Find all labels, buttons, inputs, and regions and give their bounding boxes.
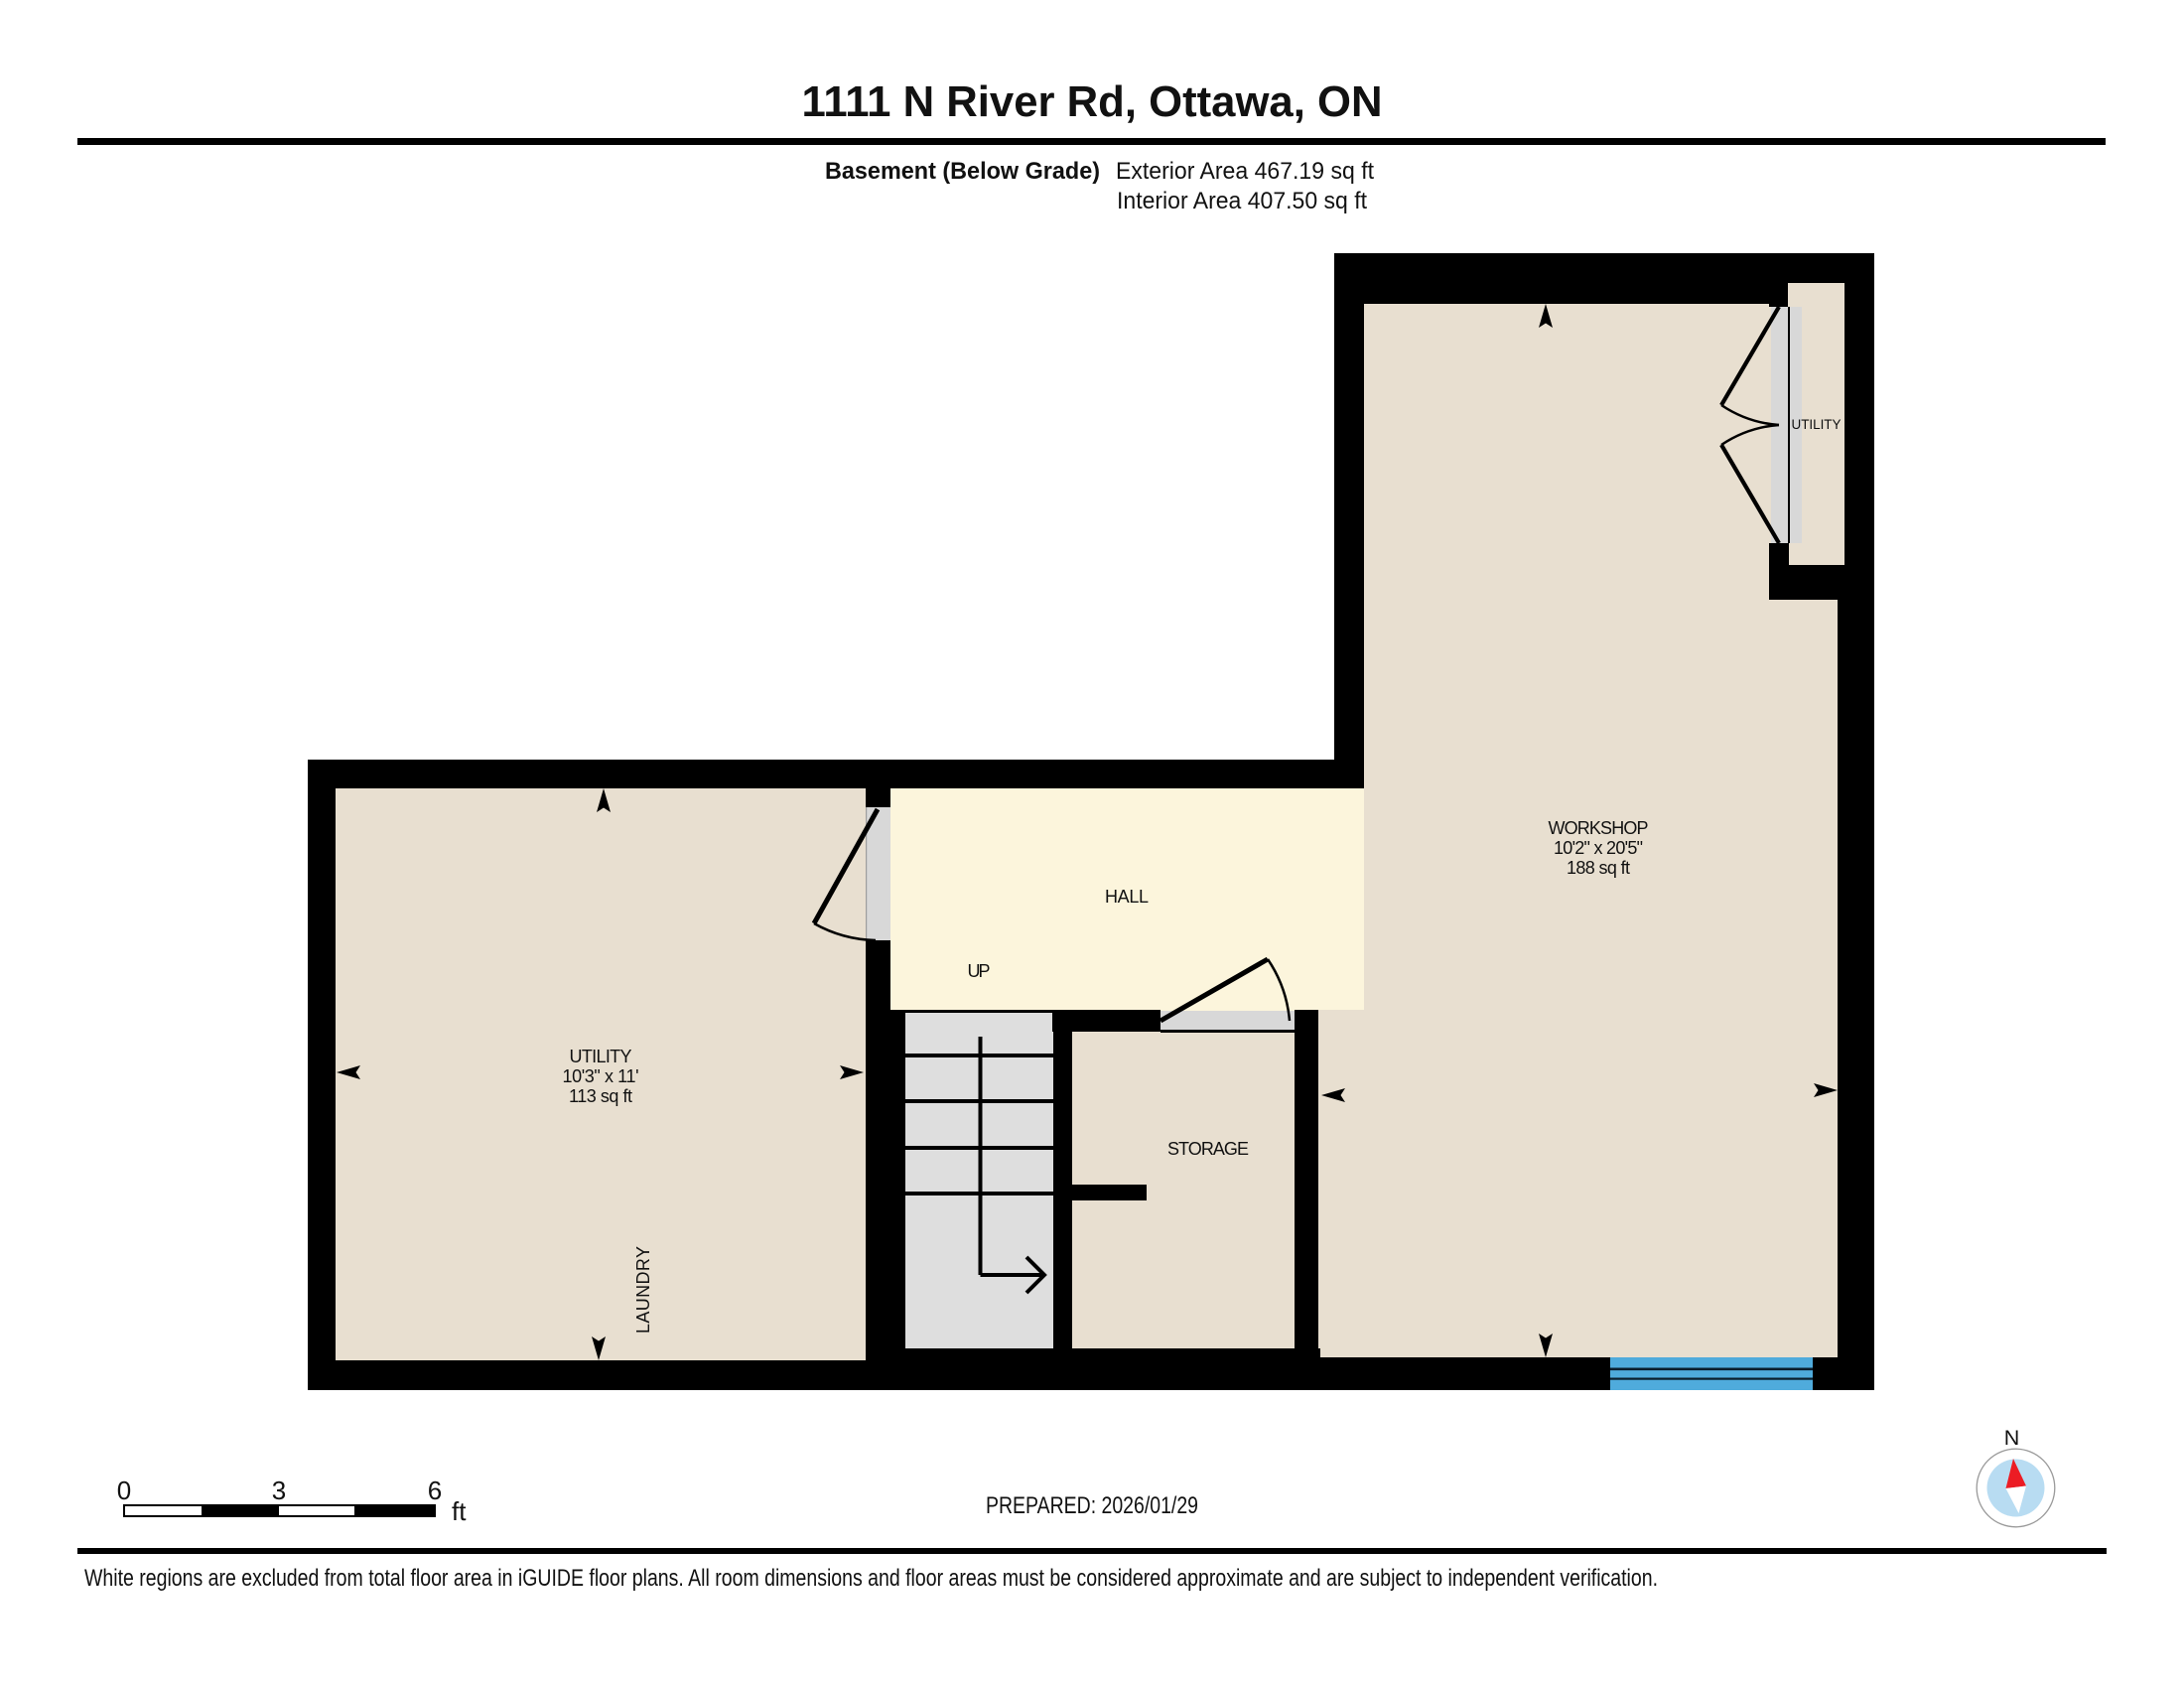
svg-text:188 sq ft: 188 sq ft	[1567, 858, 1630, 878]
svg-text:UP: UP	[968, 961, 991, 981]
svg-text:ft: ft	[452, 1496, 467, 1526]
svg-text:0: 0	[117, 1476, 131, 1505]
svg-text:Basement (Below Grade): Basement (Below Grade)	[825, 158, 1100, 185]
svg-text:113 sq ft: 113 sq ft	[569, 1086, 632, 1106]
svg-text:UTILITY: UTILITY	[1792, 417, 1842, 432]
svg-text:HALL: HALL	[1105, 887, 1149, 907]
svg-text:10'2" x 20'5": 10'2" x 20'5"	[1554, 838, 1643, 858]
svg-text:White regions are excluded fro: White regions are excluded from total fl…	[84, 1565, 1658, 1592]
svg-text:WORKSHOP: WORKSHOP	[1549, 818, 1649, 838]
svg-text:N: N	[2004, 1426, 2020, 1450]
svg-text:3: 3	[272, 1476, 286, 1505]
svg-text:10'3" x 11': 10'3" x 11'	[563, 1066, 639, 1086]
svg-text:PREPARED: 2026/01/29: PREPARED: 2026/01/29	[986, 1492, 1198, 1519]
svg-text:6: 6	[428, 1476, 442, 1505]
svg-text:LAUNDRY: LAUNDRY	[633, 1246, 653, 1334]
svg-text:UTILITY: UTILITY	[570, 1047, 632, 1066]
svg-text:Interior Area 407.50 sq ft: Interior Area 407.50 sq ft	[1117, 188, 1367, 214]
svg-text:Exterior Area 467.19 sq ft: Exterior Area 467.19 sq ft	[1116, 158, 1374, 185]
svg-text:1111 N River Rd, Ottawa, ON: 1111 N River Rd, Ottawa, ON	[802, 77, 1383, 126]
svg-text:STORAGE: STORAGE	[1167, 1139, 1249, 1159]
